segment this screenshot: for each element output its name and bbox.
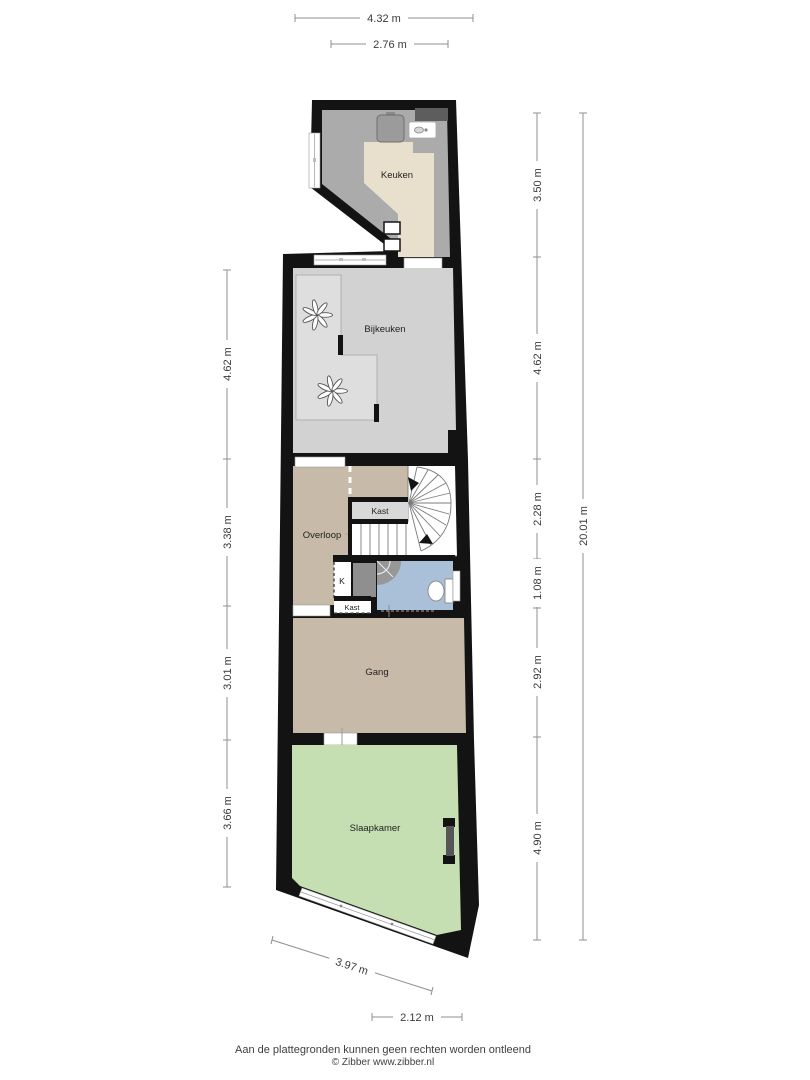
wall-stub [374,404,379,422]
svg-text:4.62 m: 4.62 m [222,347,234,381]
room-label-bijkeuken: Bijkeuken [364,324,405,335]
dim-right-total: 20.01 m [576,113,590,940]
svg-text:4.62 m: 4.62 m [532,341,544,375]
svg-text:3.38 m: 3.38 m [222,515,234,549]
footer-credit: © Zibber www.zibber.nl [0,1057,766,1068]
dim-right-1: 3.50 m [530,113,544,257]
room-label-k: K [339,576,345,586]
closet-k: K [334,562,352,598]
room-label-overloop: Overloop [303,530,342,541]
svg-text:2.12 m: 2.12 m [400,1012,434,1024]
footer: Aan de plattegronden kunnen geen rechten… [0,1044,766,1068]
utility-unit [352,562,377,598]
room-keuken: Keuken [309,108,450,270]
door-opening-glyph [324,733,357,745]
wall-stub [338,335,343,355]
dim-right-4: 1.08 m [530,559,544,608]
sink-icon [409,122,436,138]
room-label-kast-top: Kast [371,506,389,516]
dim-left-2: 3.38 m [220,459,234,606]
svg-text:2.28 m: 2.28 m [532,492,544,526]
room-gang: Gang [293,605,466,750]
wall-stub [348,497,352,556]
dim-top-1: 4.32 m [295,11,473,25]
room-label-keuken: Keuken [381,170,413,181]
room-label-kast-bottom: Kast [344,603,360,612]
dim-top-2: 2.76 m [331,37,448,51]
wall-stub [334,596,371,601]
door-opening-glyph [293,605,330,616]
dim-left-4: 3.66 m [220,740,234,887]
window-glyph [314,255,386,265]
dim-right-3: 2.28 m [530,459,544,559]
stove-icon [377,112,404,142]
wall-stub [352,497,408,502]
room-label-slaapkamer: Slaapkamer [350,823,401,834]
svg-text:1.08 m: 1.08 m [532,566,544,600]
svg-text:3.50 m: 3.50 m [532,168,544,202]
closet-kast-bottom: Kast [334,596,371,613]
svg-text:4.90 m: 4.90 m [532,821,544,855]
svg-text:3.01 m: 3.01 m [222,656,234,690]
dim-bottom-diagonal: 3.97 m [271,936,433,995]
dim-right-6: 4.90 m [530,737,544,940]
dim-right-2: 4.62 m [530,257,544,459]
bathroom [377,561,460,617]
svg-text:3.66 m: 3.66 m [222,796,234,830]
floorplan-page: Keuken [0,0,810,1080]
svg-text:4.32 m: 4.32 m [367,13,401,25]
dim-bottom: 2.12 m [372,1010,462,1024]
window-glyph [453,571,460,601]
dim-left-1: 4.62 m [220,270,234,459]
toilet-icon [428,579,453,603]
svg-text:20.01 m: 20.01 m [578,506,590,546]
dark-unit [415,108,448,121]
room-label-gang: Gang [365,667,388,678]
svg-text:2.76 m: 2.76 m [373,39,407,51]
footer-disclaimer: Aan de plattegronden kunnen geen rechten… [0,1044,766,1056]
dim-right-5: 2.92 m [530,608,544,737]
slaapkamer-floor [292,745,461,935]
door-opening-glyph [295,457,345,467]
svg-text:2.92 m: 2.92 m [532,655,544,689]
dim-left-3: 3.01 m [220,606,234,740]
wall-stub [352,519,408,524]
window-glyph [309,133,320,188]
wall-stub [333,555,455,562]
floorplan-drawing: Keuken [0,0,810,1080]
middle-lower-row: K Kast [333,555,460,617]
room-bijkeuken: Bijkeuken [293,255,456,453]
